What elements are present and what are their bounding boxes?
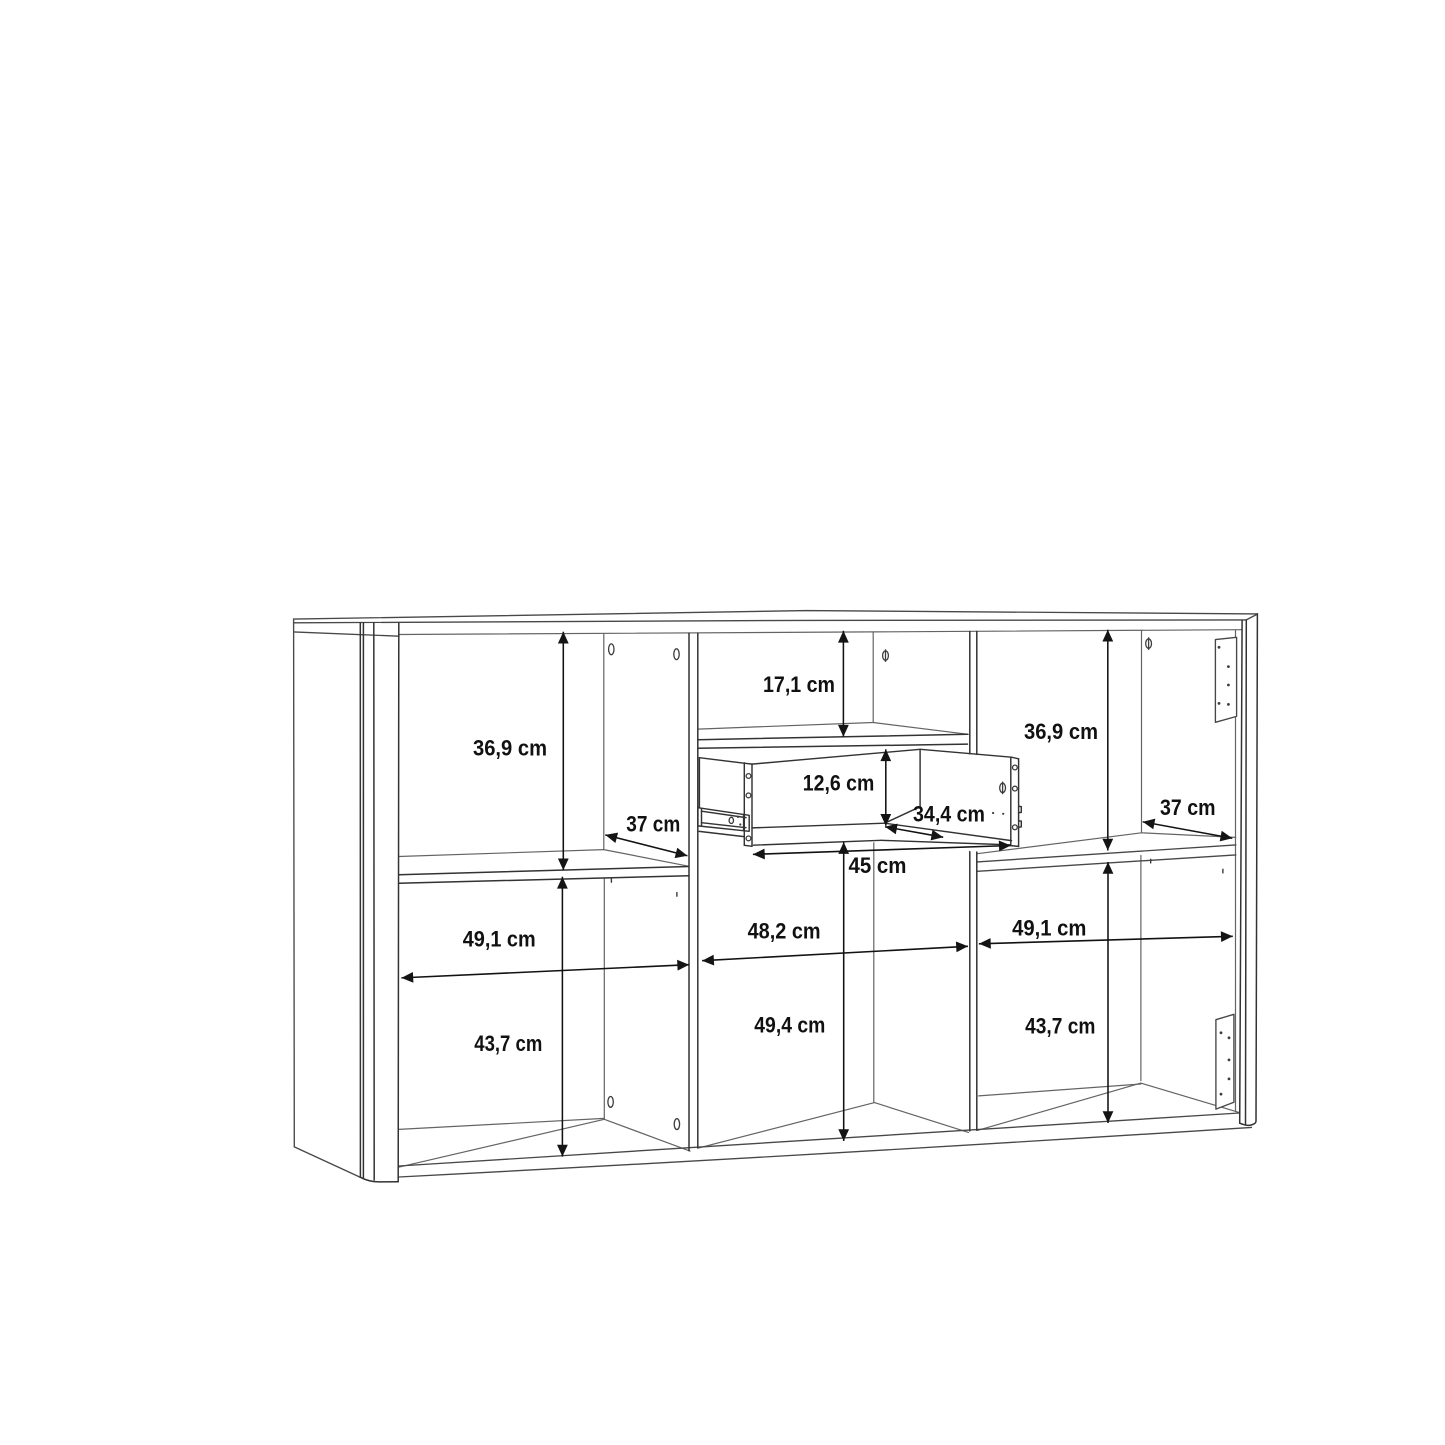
svg-text:43,7 cm: 43,7 cm <box>1025 1014 1095 1039</box>
svg-text:43,7 cm: 43,7 cm <box>474 1031 542 1056</box>
svg-text:37 cm: 37 cm <box>626 812 680 837</box>
svg-text:49,1 cm: 49,1 cm <box>1012 915 1086 940</box>
svg-text:49,4 cm: 49,4 cm <box>754 1012 825 1037</box>
svg-text:48,2 cm: 48,2 cm <box>748 919 821 944</box>
svg-text:36,9 cm: 36,9 cm <box>1024 719 1098 744</box>
svg-text:17,1 cm: 17,1 cm <box>763 672 835 697</box>
svg-text:45 cm: 45 cm <box>849 853 907 878</box>
svg-text:36,9 cm: 36,9 cm <box>473 736 547 761</box>
svg-text:34,4 cm: 34,4 cm <box>913 802 985 827</box>
svg-text:12,6 cm: 12,6 cm <box>803 771 875 796</box>
svg-text:49,1 cm: 49,1 cm <box>463 927 536 952</box>
svg-text:37 cm: 37 cm <box>1160 795 1216 820</box>
